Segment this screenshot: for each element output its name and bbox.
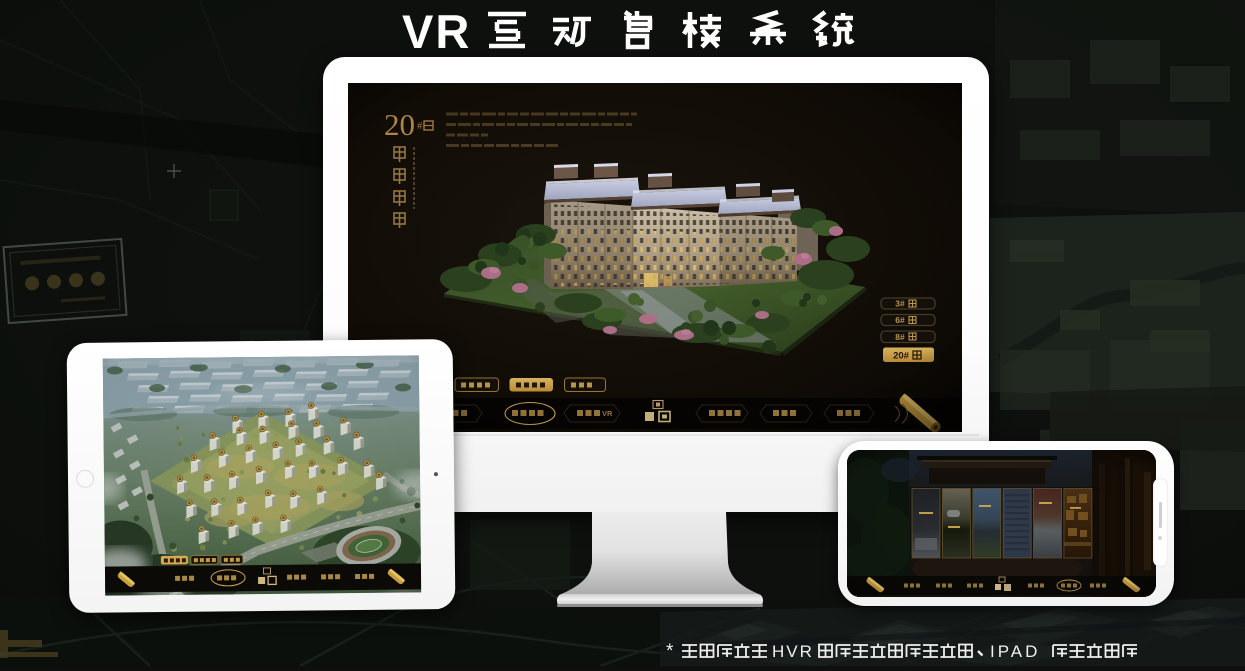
svg-text:VR: VR (402, 5, 471, 56)
svg-text:HVR: HVR (772, 642, 814, 661)
svg-text:IPAD: IPAD (990, 642, 1040, 661)
svg-text:*: * (666, 641, 674, 662)
